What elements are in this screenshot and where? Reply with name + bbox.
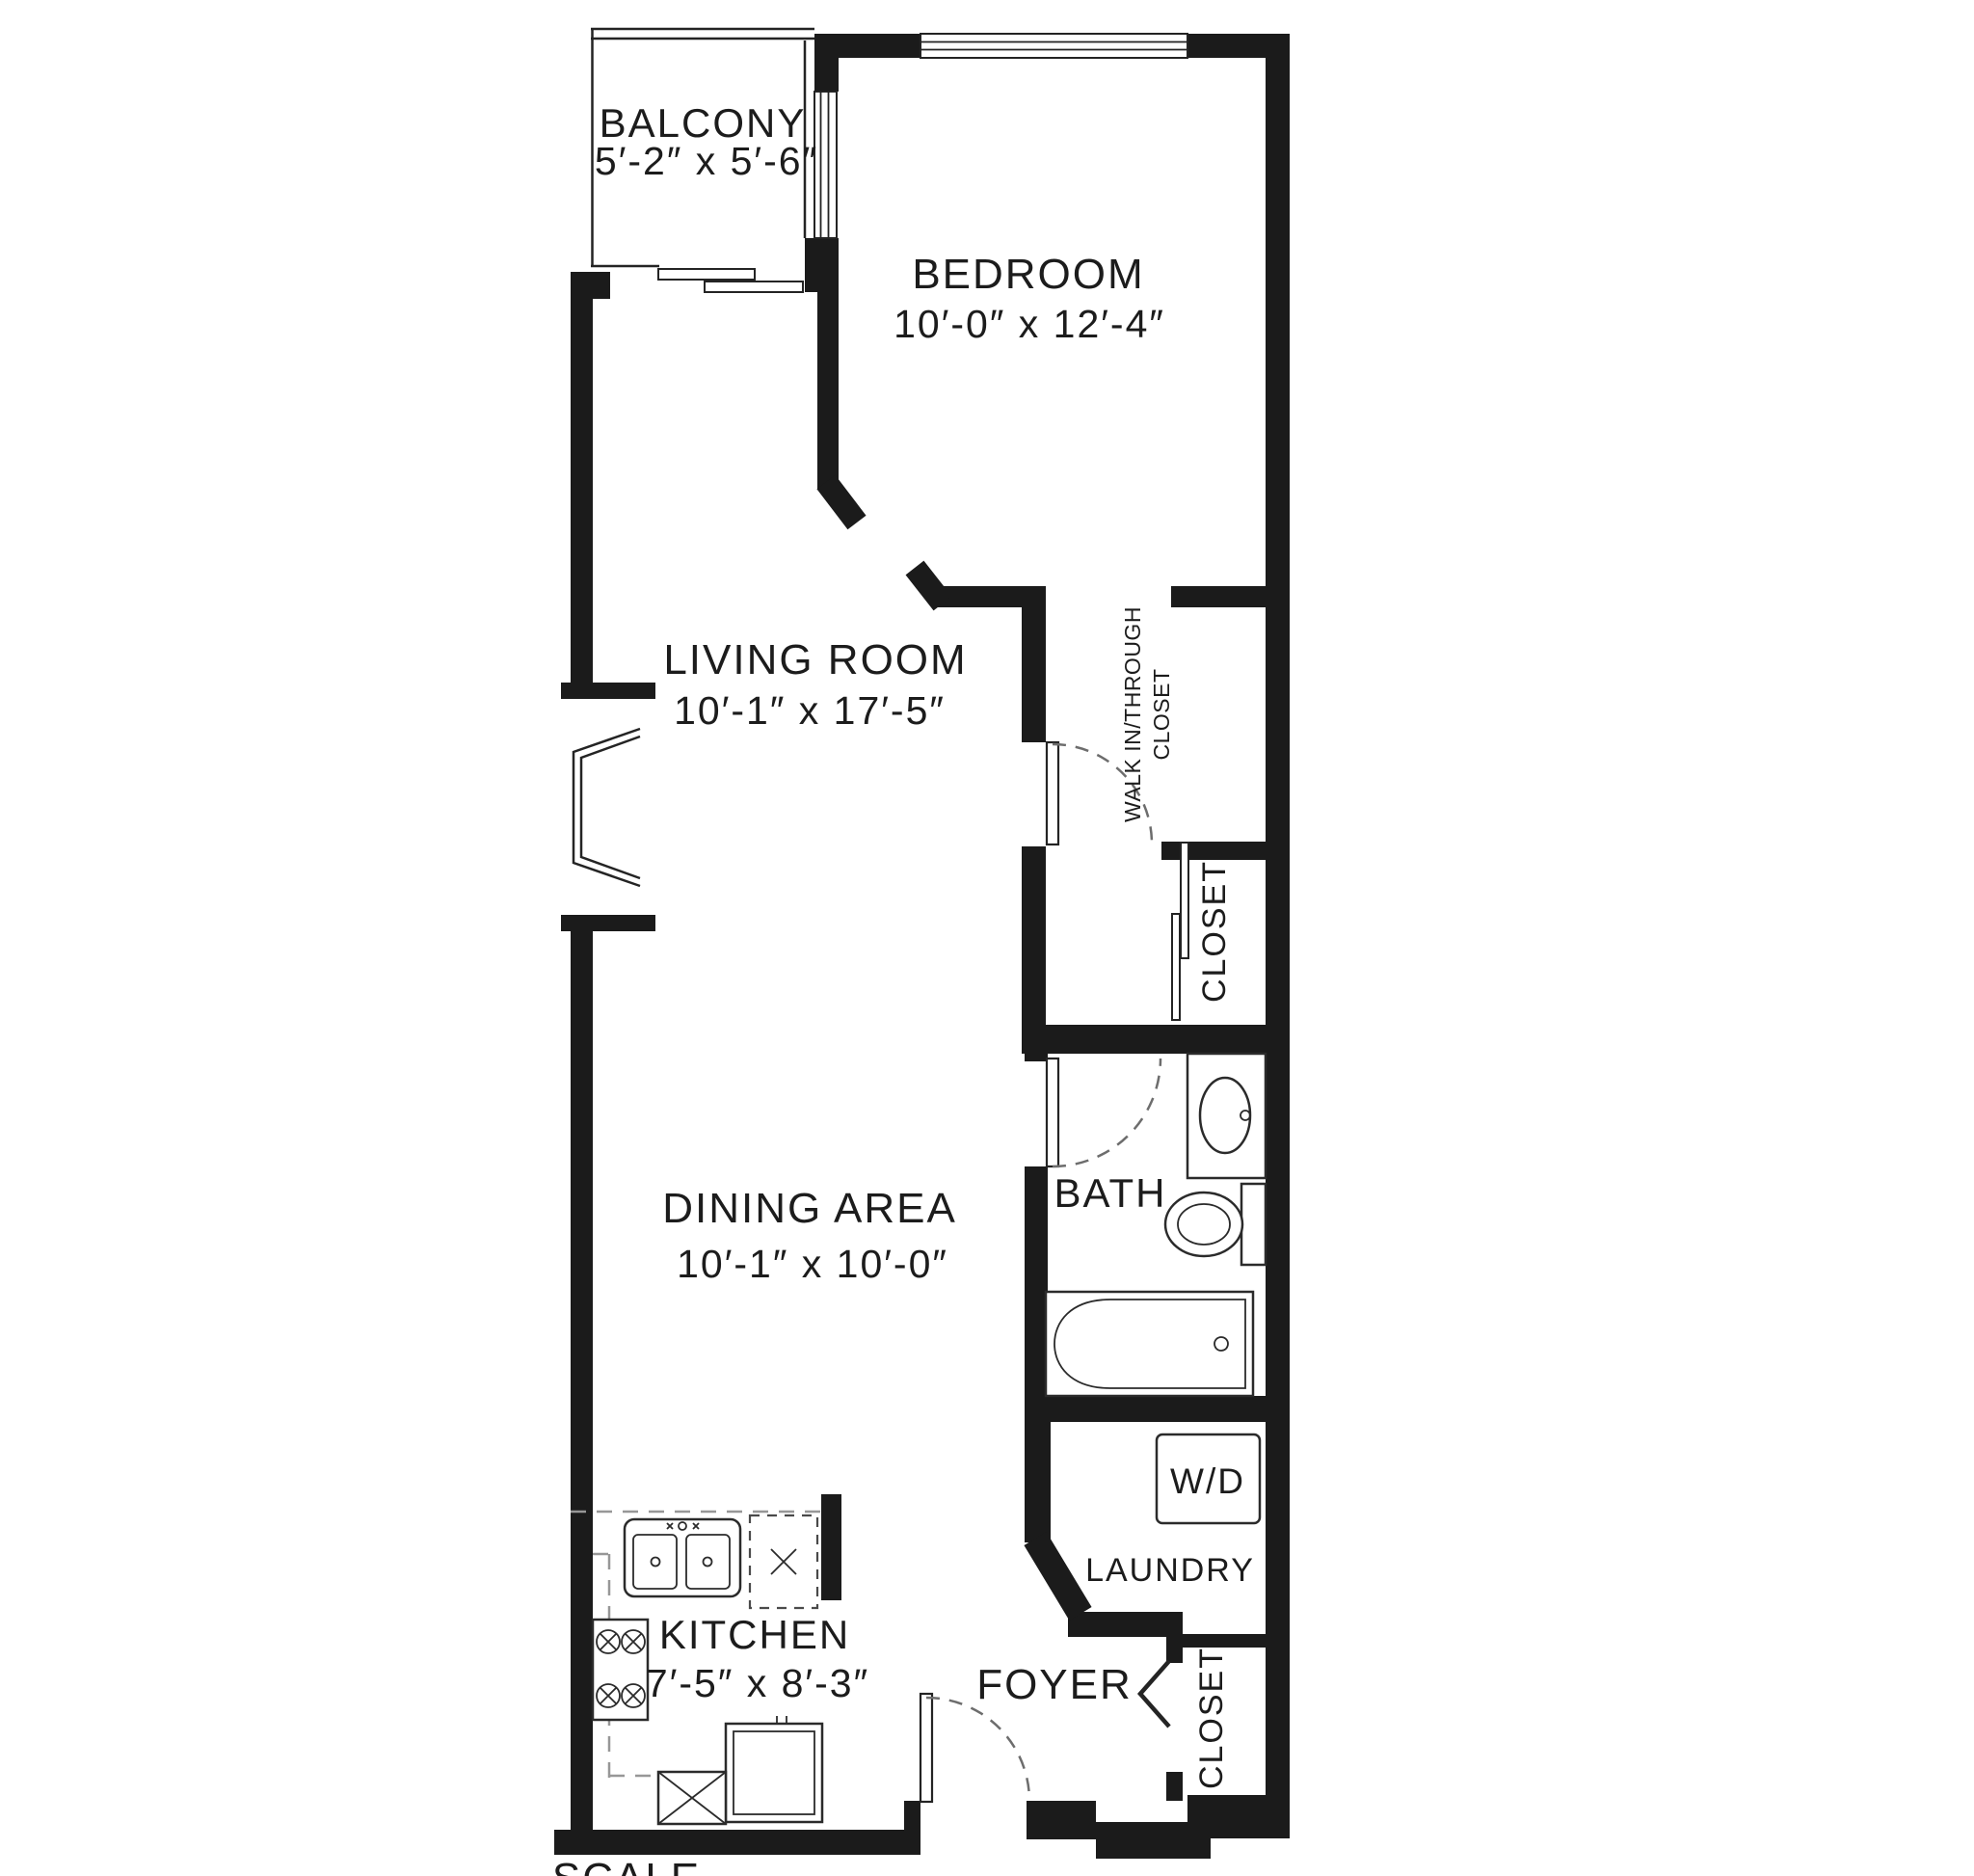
living-room-label: LIVING ROOM: [663, 636, 967, 683]
balcony-sliding-door-panel-1: [658, 269, 755, 280]
svg-text:WALK IN/THROUGH: WALK IN/THROUGH: [1120, 606, 1145, 822]
dishwasher: [750, 1515, 817, 1608]
bath-door-swing-arc: [1053, 1059, 1160, 1166]
bedroom-closet-label: CLOSET: [1196, 860, 1233, 1003]
foyer-label: FOYER: [976, 1661, 1133, 1708]
balcony-dims: 5′-2″ x 5′-6″: [595, 139, 818, 183]
bedroom-corner-chamfer-wall: [826, 482, 857, 523]
entry-door-swing-arc: [926, 1698, 1029, 1801]
kitchen-double-sink: [625, 1519, 740, 1596]
bath-label: BATH: [1054, 1170, 1167, 1216]
entry-door: [920, 1694, 1029, 1802]
bedroom-dims: 10′-0″ x 12′-4″: [894, 302, 1165, 346]
bath-door-leaf: [1047, 1059, 1058, 1166]
toilet: [1165, 1184, 1266, 1265]
laundry-diagonal-wall: [1035, 1539, 1080, 1614]
bathtub: [1046, 1292, 1253, 1396]
living-room-bay-window: [574, 729, 640, 886]
dining-area-label: DINING AREA: [662, 1185, 957, 1232]
foyer-closet-bifold-door: [1140, 1661, 1169, 1727]
scale-label-partial: SCALE: [552, 1855, 701, 1876]
bathroom-vanity-sink: [1187, 1054, 1266, 1178]
entry-door-leaf: [920, 1694, 932, 1802]
balcony-sliding-door-panel-2: [705, 281, 803, 292]
stove-cooktop: [593, 1620, 648, 1720]
living-room-dims: 10′-1″ x 17′-5″: [674, 688, 946, 733]
bedroom-top-window: [920, 34, 1187, 58]
washer-dryer-label: W/D: [1170, 1461, 1245, 1501]
kitchen-dims: 7′-5″ x 8′-3″: [646, 1661, 869, 1705]
svg-text:CLOSET: CLOSET: [1196, 860, 1233, 1003]
bedroom-label: BEDROOM: [912, 251, 1144, 298]
hall-closet-door-leaf: [1047, 742, 1058, 844]
oven-appliance: [658, 1772, 726, 1824]
dining-area-dims: 10′-1″ x 10′-0″: [677, 1242, 948, 1286]
floor-plan-page: BALCONY 5′-2″ x 5′-6″ BEDROOM 10′-0″ x 1…: [0, 0, 1974, 1876]
svg-text:CLOSET: CLOSET: [1149, 668, 1174, 760]
walk-in-closet-label: WALK IN/THROUGH CLOSET: [1120, 606, 1174, 822]
room-labels: BALCONY 5′-2″ x 5′-6″ BEDROOM 10′-0″ x 1…: [552, 100, 1255, 1876]
bedroom-closet-bypass-doors: [1172, 843, 1188, 1020]
kitchen-label: KITCHEN: [659, 1612, 850, 1657]
floor-plan-canvas: BALCONY 5′-2″ x 5′-6″ BEDROOM 10′-0″ x 1…: [0, 0, 1974, 1876]
svg-text:CLOSET: CLOSET: [1193, 1647, 1230, 1789]
refrigerator: [726, 1716, 822, 1822]
bedroom-entry-chamfer-wall: [915, 568, 943, 603]
bath-door: [1047, 1059, 1160, 1166]
laundry-label: LAUNDRY: [1085, 1552, 1255, 1589]
foyer-closet-label: CLOSET: [1193, 1647, 1230, 1789]
